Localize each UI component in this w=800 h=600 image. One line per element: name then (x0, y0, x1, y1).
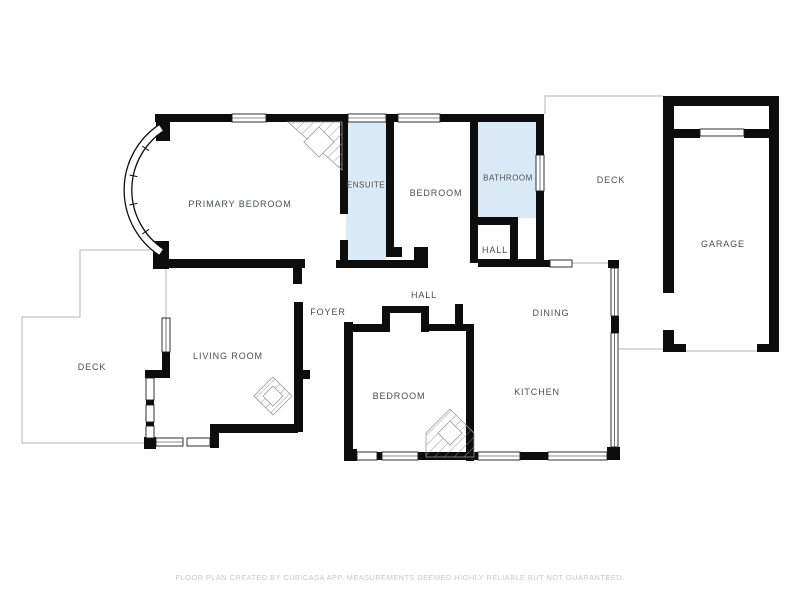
room-label-bathroom: BATHROOM (483, 174, 533, 183)
footer-disclaimer: FLOOR PLAN CREATED BY CUBICASA APP. MEAS… (0, 573, 800, 582)
room-label-kitchen: KITCHEN (514, 387, 560, 397)
floor-plan-canvas: PRIMARY BEDROOM ENSUITE BEDROOM BATHROOM… (0, 0, 800, 600)
room-label-ensuite: ENSUITE (347, 181, 385, 190)
room-label-bedroom-lower: BEDROOM (373, 391, 426, 401)
room-label-living-room: LIVING ROOM (193, 351, 263, 361)
room-label-garage: GARAGE (701, 239, 745, 249)
room-label-foyer: FOYER (310, 307, 346, 317)
windows (146, 114, 744, 460)
room-label-hall-main: HALL (411, 290, 437, 300)
room-label-hall-upper: HALL (482, 245, 508, 255)
fireplace-primary-bedroom (288, 122, 342, 170)
room-label-bedroom-upper: BEDROOM (410, 188, 463, 198)
room-label-deck-upper: DECK (597, 175, 626, 185)
bay-window (128, 128, 161, 252)
floor-plan-drawing (0, 0, 800, 600)
room-label-deck-lower: DECK (78, 362, 107, 372)
fireplace-living-room (254, 377, 292, 415)
walls (144, 96, 779, 461)
room-label-primary-bedroom: PRIMARY BEDROOM (188, 199, 291, 209)
room-label-dining: DINING (533, 308, 570, 318)
